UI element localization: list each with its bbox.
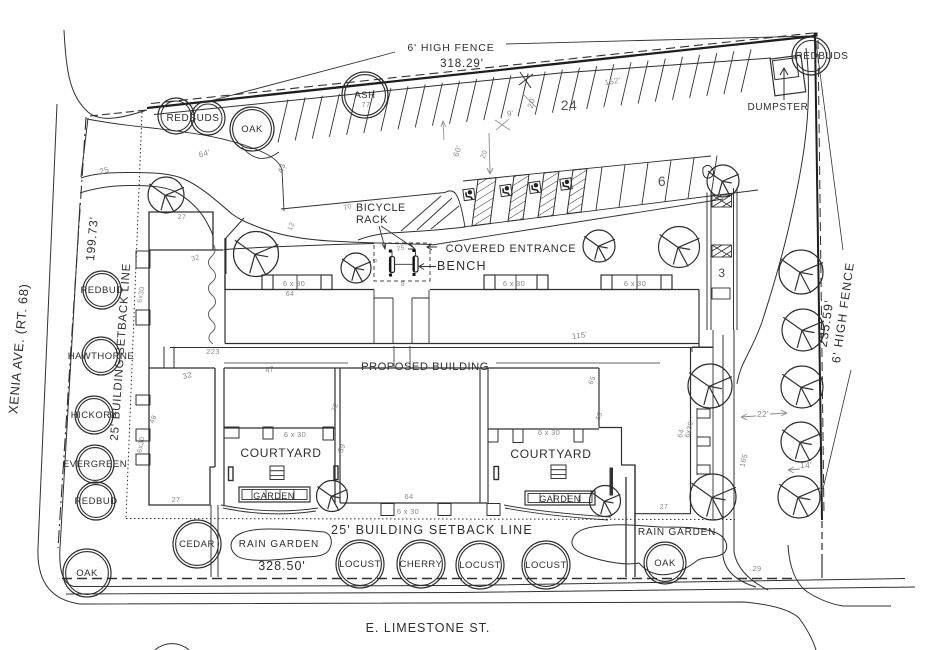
svg-text:3: 3	[718, 266, 725, 280]
svg-text:REDBUD: REDBUD	[74, 496, 117, 507]
svg-text:6' HIGH FENCE: 6' HIGH FENCE	[407, 42, 494, 54]
svg-text:RAIN GARDEN: RAIN GARDEN	[638, 527, 716, 538]
svg-text:64: 64	[286, 291, 294, 298]
svg-text:6: 6	[658, 173, 666, 189]
svg-text:LOCUST: LOCUST	[525, 560, 567, 571]
svg-text:27: 27	[178, 214, 186, 221]
svg-text:328.50': 328.50'	[258, 559, 306, 573]
svg-text:RACK: RACK	[356, 214, 388, 226]
svg-text:LOCUST: LOCUST	[339, 559, 381, 570]
svg-text:6 x 30: 6 x 30	[284, 430, 306, 439]
svg-text:HAWTHORNE: HAWTHORNE	[68, 351, 134, 362]
svg-text:OAK: OAK	[241, 124, 263, 135]
svg-text:RAIN GARDEN: RAIN GARDEN	[239, 539, 319, 550]
svg-text:318.29': 318.29'	[440, 58, 484, 70]
svg-text:DUMPSTER: DUMPSTER	[748, 102, 809, 113]
svg-text:6 x 30: 6 x 30	[397, 507, 419, 516]
svg-text:8: 8	[401, 281, 405, 288]
svg-text:6 x 30: 6 x 30	[503, 279, 525, 288]
svg-text:CEDAR: CEDAR	[179, 539, 215, 550]
svg-text:OAK: OAK	[654, 558, 676, 569]
svg-text:REDBUDS: REDBUDS	[795, 51, 848, 62]
svg-text:GARDEN: GARDEN	[539, 494, 581, 504]
svg-text:COURTYARD: COURTYARD	[510, 447, 591, 461]
svg-text:OAK: OAK	[76, 568, 98, 579]
svg-text:HICKORY: HICKORY	[71, 410, 118, 421]
svg-text:24: 24	[561, 97, 578, 113]
svg-text:25' BUILDING SETBACK LINE: 25' BUILDING SETBACK LINE	[331, 523, 533, 537]
svg-text:E. LIMESTONE ST.: E. LIMESTONE ST.	[366, 621, 491, 635]
svg-text:COURTYARD: COURTYARD	[240, 446, 321, 460]
svg-text:EVERGREEN: EVERGREEN	[63, 459, 127, 470]
svg-text:BENCH: BENCH	[437, 259, 487, 273]
svg-text:LOCUST: LOCUST	[459, 560, 501, 571]
svg-text:25: 25	[396, 244, 405, 252]
svg-text:REDBUDS: REDBUDS	[166, 113, 219, 124]
svg-text:CHERRY: CHERRY	[400, 559, 443, 570]
svg-text:77: 77	[362, 100, 371, 109]
svg-text:PROPOSED BUILDING: PROPOSED BUILDING	[361, 361, 489, 373]
svg-text:27: 27	[172, 495, 181, 504]
svg-text:6 x 30: 6 x 30	[283, 279, 305, 288]
svg-text:47: 47	[264, 364, 274, 374]
svg-text:22': 22'	[757, 409, 769, 419]
svg-text:6 x 30: 6 x 30	[624, 279, 646, 288]
svg-text:COVERED ENTRANCE: COVERED ENTRANCE	[446, 243, 577, 255]
svg-text:223: 223	[206, 347, 219, 356]
svg-text:27: 27	[660, 504, 668, 511]
svg-text:BICYCLE: BICYCLE	[356, 202, 406, 214]
svg-text:64: 64	[405, 492, 414, 501]
svg-text:29: 29	[753, 564, 762, 573]
svg-text:6 x 30: 6 x 30	[538, 428, 560, 437]
svg-text:REDBUD: REDBUD	[80, 285, 123, 296]
svg-text:GARDEN: GARDEN	[253, 491, 295, 501]
